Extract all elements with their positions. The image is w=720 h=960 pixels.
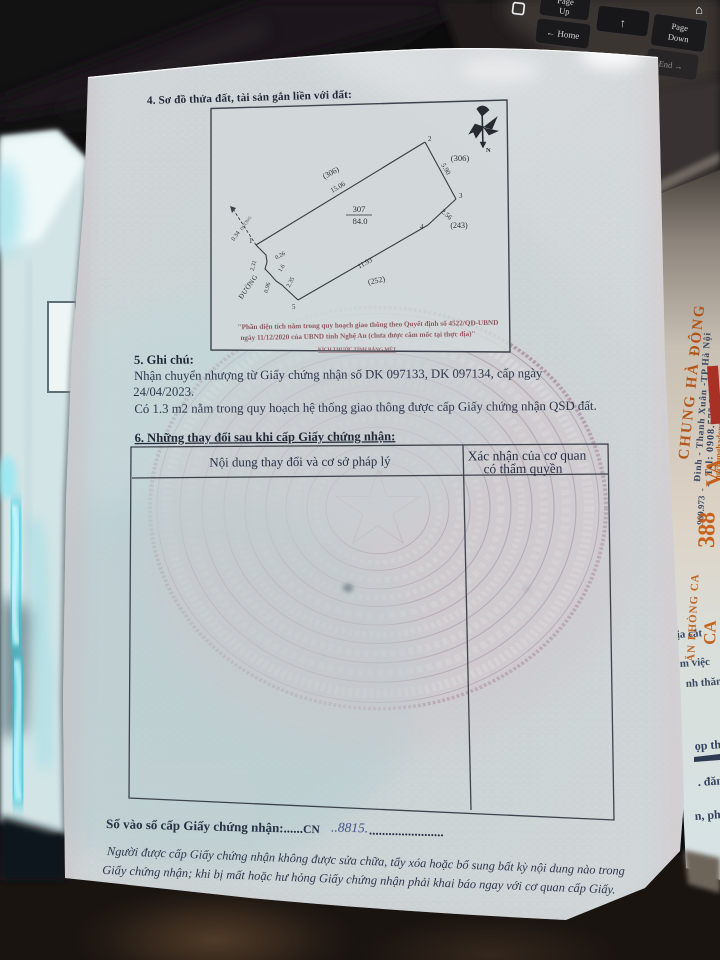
svg-text:6. Những thay đổi sau khi cấp: 6. Những thay đổi sau khi cấp Giấy chứng… (134, 429, 395, 445)
svg-text:..8815.: ..8815. (331, 820, 368, 836)
svg-text:KÍCH THƯỚC TÍNH BẰNG MÉT: KÍCH THƯỚC TÍNH BẰNG MÉT (318, 345, 397, 353)
svg-text:3: 3 (459, 192, 463, 200)
svg-text:ọp th: ọp th (694, 737, 720, 753)
svg-text:có thẩm quyền: có thẩm quyền (483, 461, 562, 477)
svg-text:CA: CA (700, 619, 720, 645)
svg-text:n, phố: n, phố (694, 807, 720, 823)
svg-text:84.0: 84.0 (353, 216, 368, 226)
svg-text:.......................: ....................... (369, 822, 444, 839)
svg-text:nh thăm: nh thăm (685, 675, 720, 690)
svg-text:2: 2 (428, 135, 432, 143)
svg-text:1: 1 (249, 237, 253, 245)
svg-text:307: 307 (353, 204, 366, 214)
svg-text:Nội dung thay đổi và cơ sở phá: Nội dung thay đổi và cơ sở pháp lý (209, 454, 391, 469)
svg-text:5. Ghi chú:: 5. Ghi chú: (134, 353, 194, 367)
svg-text:⌂: ⌂ (695, 2, 703, 17)
svg-text:24/04/2023.: 24/04/2023. (133, 385, 194, 399)
svg-text:m việc: m việc (679, 656, 710, 670)
svg-text:Up: Up (559, 5, 571, 16)
svg-text:N: N (486, 147, 491, 154)
svg-text:ịa cắt: ịa cắt (676, 627, 702, 641)
svg-text:388: 388 (694, 512, 720, 548)
svg-text:(243): (243) (450, 221, 468, 230)
svg-text:VA: VA (701, 458, 720, 487)
svg-text:5: 5 (292, 303, 296, 311)
svg-text:(306): (306) (451, 153, 470, 163)
svg-text:Nhận chuyển nhượng từ Giấy chứ: Nhận chuyển nhượng từ Giấy chứng nhận số… (134, 366, 543, 383)
svg-text:. đăn: . đăn (697, 773, 720, 789)
svg-text:4: 4 (420, 223, 424, 231)
